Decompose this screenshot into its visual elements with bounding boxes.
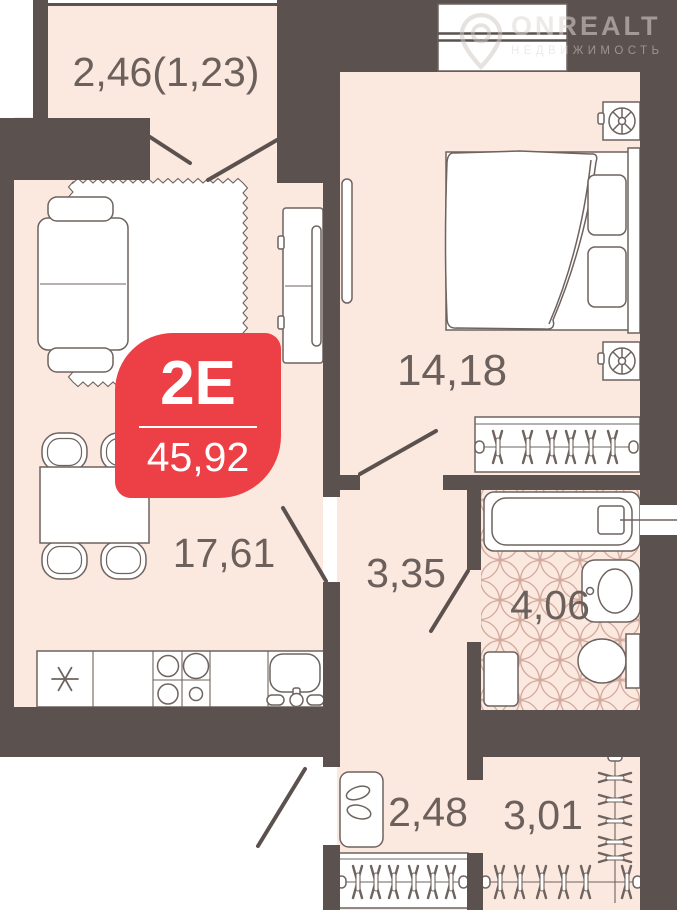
bathroom-area-label: 4,06 bbox=[510, 582, 590, 628]
floor-plan-drawing: 2,46(1,23) 14,18 17,61 3,35 4,06 2,48 3,… bbox=[0, 0, 677, 910]
washing-machine bbox=[484, 652, 518, 706]
pillow bbox=[588, 175, 626, 235]
bedroom-closet bbox=[475, 417, 640, 472]
badge-divider bbox=[139, 426, 257, 428]
bedroom-tv bbox=[342, 179, 352, 303]
pillow bbox=[588, 247, 626, 307]
entry-area-label: 2,48 bbox=[388, 789, 468, 835]
apartment-type-label: 2Е bbox=[160, 353, 236, 415]
kitchen-sink bbox=[267, 654, 324, 707]
bed bbox=[446, 148, 641, 333]
kitchen-counter bbox=[37, 651, 325, 707]
living-area-label: 17,61 bbox=[173, 530, 276, 576]
bathroom-sink bbox=[582, 560, 640, 622]
nightstand bbox=[598, 102, 640, 140]
sofa bbox=[38, 197, 128, 372]
shoe-cabinet bbox=[340, 772, 383, 847]
nightstand bbox=[598, 342, 640, 380]
tv-stand bbox=[278, 208, 323, 363]
bedroom-window bbox=[438, 4, 567, 71]
bedroom-area-label: 14,18 bbox=[397, 346, 507, 395]
hallway-area-label: 3,35 bbox=[366, 550, 446, 596]
entry-closet bbox=[337, 853, 468, 908]
apartment-type-badge: 2Е 45,92 bbox=[115, 333, 281, 498]
floor-plan: 2,46(1,23) 14,18 17,61 3,35 4,06 2,48 3,… bbox=[0, 0, 677, 910]
wardrobe-area-label: 3,01 bbox=[503, 792, 583, 838]
balcony-area-label: 2,46(1,23) bbox=[73, 49, 260, 95]
bathtub bbox=[484, 492, 640, 551]
entrance-door-leaf bbox=[258, 769, 305, 846]
apartment-total-area: 45,92 bbox=[147, 437, 250, 478]
